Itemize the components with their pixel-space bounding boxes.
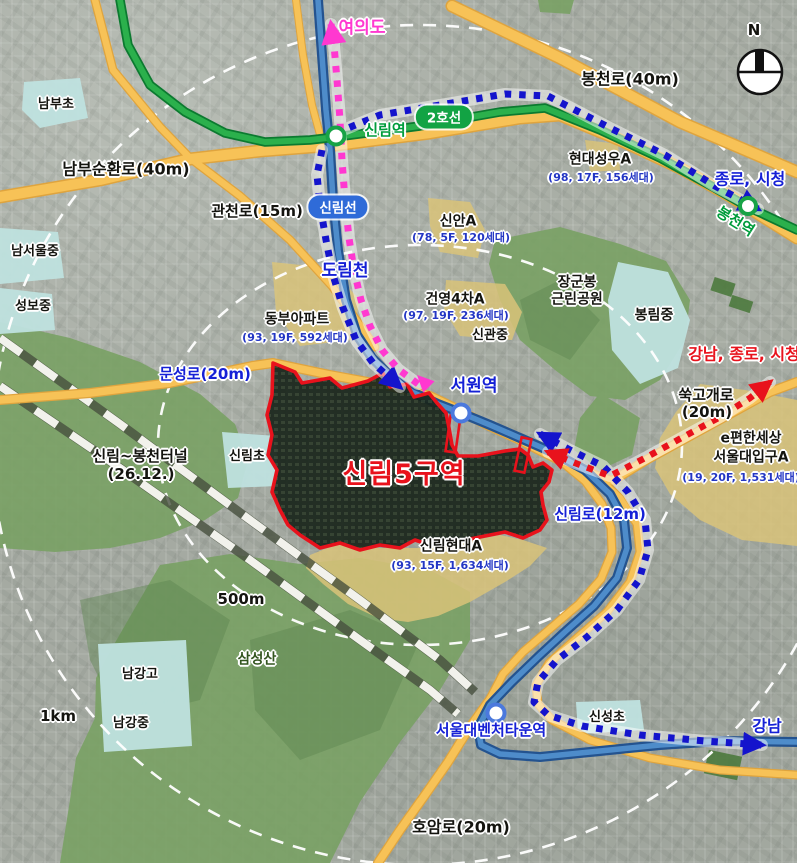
station-marker-snu-venture: [488, 705, 505, 722]
dest-jongno-sicheong: 종로, 시청: [715, 172, 786, 189]
district-polygon: [267, 363, 552, 550]
apt-geonyeong: 건영4차A: [425, 293, 484, 308]
tunnel-note: (26.12.): [108, 467, 175, 483]
school-namgang-high: 남강고: [122, 668, 158, 682]
station-marker-seowon: [453, 405, 470, 422]
dest-gangnam-jongno-sicheong: 강남, 종로, 시청: [688, 347, 797, 364]
road-nambusunhwanro: 남부순환로(40m): [62, 162, 189, 179]
district-sillim5: [267, 363, 552, 550]
green-patch-bongnim-2: [729, 295, 754, 313]
apt-epyeonhan-2: 서울대입구A: [713, 451, 788, 466]
tunnel-name: 신림~봉천터널: [92, 449, 187, 465]
apt-dongbu-detail: (93, 19F, 592세대): [242, 332, 348, 344]
school-nambucho: 남부초: [38, 98, 74, 112]
apt-sinan-detail: (78, 5F, 120세대): [412, 232, 510, 244]
road-sillimro: 신림로(12m): [554, 507, 646, 523]
district-title: 신림5구역: [342, 461, 465, 489]
badge-line2: 2호선: [416, 106, 472, 129]
station-marker-bongcheon: [740, 198, 756, 214]
namgang-zone: [98, 640, 192, 752]
park-janggunbong-1: 장군봉: [558, 276, 597, 291]
scale-1km: 1km: [40, 709, 76, 725]
road-bongcheonro: 봉천로(40m): [581, 72, 679, 89]
scale-500m: 500m: [218, 592, 265, 608]
apt-hyundai-sungwoo-detail: (98, 17F, 156세대): [548, 172, 654, 184]
green-patch-bongnim-1: [710, 277, 735, 297]
apt-dongbu: 동부아파트: [265, 313, 329, 328]
school-sillimcho: 신림초: [229, 450, 265, 464]
road-gwancheonro: 관천로(15m): [211, 204, 303, 220]
station-sillim: 신림역: [364, 123, 405, 139]
station-marker-sillim: [328, 128, 345, 145]
map: 여의도 봉천로(40m) 남부초 남부순환로(40m) 종로, 시청 봉천역 관…: [0, 0, 797, 863]
station-snu-venture: 서울대벤처타운역: [436, 723, 546, 739]
apt-geonyeong-detail: (97, 19F, 236세대): [403, 310, 509, 322]
road-ssukgogae-2: (20m): [682, 405, 732, 421]
apt-hyundai-sungwoo: 현대성우A: [569, 153, 631, 168]
road-hoamro: 호암로(20m): [412, 820, 510, 837]
north-compass-icon: [738, 50, 782, 94]
station-seowon: 서원역: [451, 378, 498, 396]
school-sinseongcho: 신성초: [589, 711, 625, 725]
park-janggunbong-2: 근린공원: [551, 293, 603, 308]
apt-epyeonhan-1: e편한세상: [720, 432, 781, 447]
road-ssukgogae-1: 쑥고개로: [678, 388, 733, 404]
apt-epyeonhan-detail: (19, 20F, 1,531세대): [682, 472, 797, 484]
compass-n-label: N: [748, 23, 761, 39]
dest-yeouido: 여의도: [339, 20, 386, 38]
samseongsan-northwest-hill: [0, 322, 248, 552]
school-namseoul-middle: 남서울중: [11, 245, 59, 259]
apt-sillim-hyundai: 신림현대A: [420, 540, 482, 555]
road-munseongro: 문성로(20m): [159, 367, 251, 383]
dest-gangnam: 강남: [752, 719, 781, 736]
school-namgang-middle: 남강중: [113, 717, 149, 731]
school-seongbo-middle: 성보중: [15, 300, 51, 314]
badge-sillim-line: 신림선: [308, 196, 367, 219]
school-singwan-middle: 신관중: [472, 329, 508, 343]
river-dorimcheon: 도림천: [322, 263, 369, 281]
green-patch-top: [538, 0, 574, 14]
park-samseongsan: 삼성산: [238, 653, 277, 668]
school-bongnim-middle: 봉림중: [635, 309, 674, 324]
apt-sillim-hyundai-detail: (93, 15F, 1,634세대): [391, 560, 508, 572]
apt-sinan: 신안A: [440, 215, 477, 230]
